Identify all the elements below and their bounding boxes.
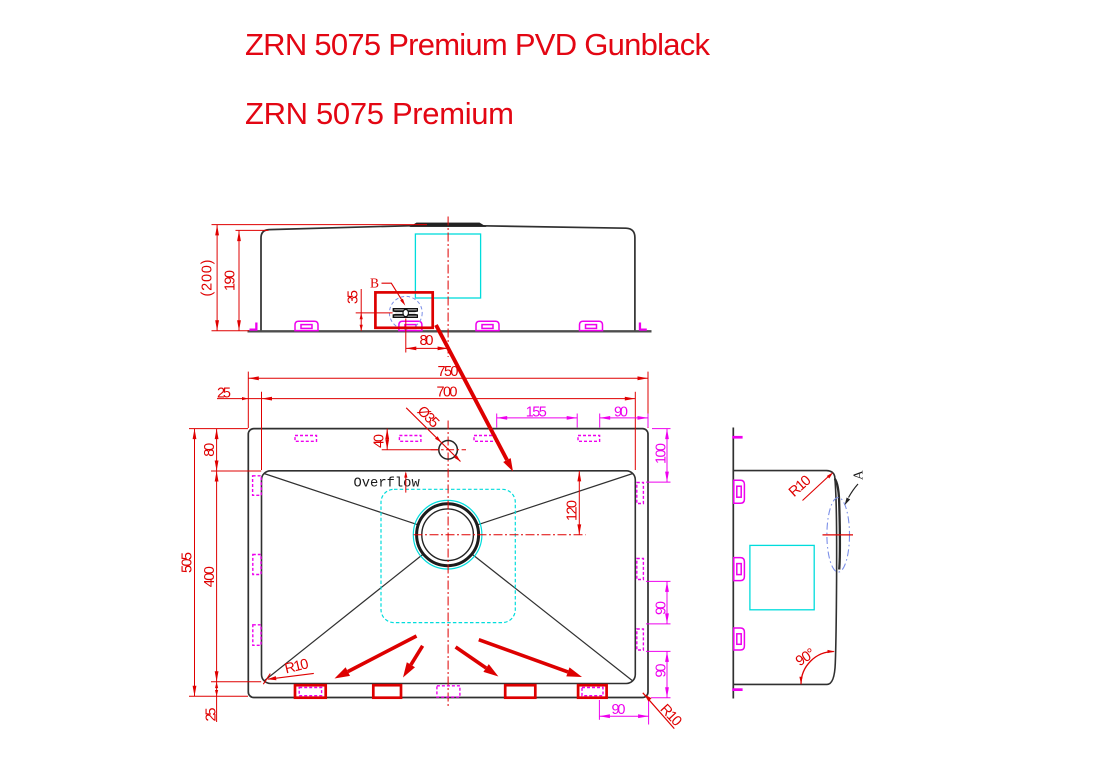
svg-text:25: 25 <box>217 385 231 401</box>
svg-text:700: 700 <box>437 385 458 401</box>
svg-text:B: B <box>370 276 379 291</box>
svg-text:(200): (200) <box>200 260 216 297</box>
svg-text:90: 90 <box>614 404 628 420</box>
svg-text:90: 90 <box>654 664 670 678</box>
svg-text:ZRN 5075 Premium: ZRN 5075 Premium <box>245 96 514 131</box>
svg-text:90°: 90° <box>793 646 818 670</box>
svg-text:35: 35 <box>346 290 362 304</box>
svg-text:A: A <box>851 470 866 480</box>
svg-text:80: 80 <box>202 443 218 457</box>
svg-text:120: 120 <box>565 500 581 521</box>
svg-text:155: 155 <box>526 404 547 420</box>
svg-text:R10: R10 <box>657 701 685 729</box>
svg-text:505: 505 <box>180 552 196 573</box>
svg-text:Overflow: Overflow <box>354 476 421 492</box>
svg-text:90: 90 <box>612 702 626 718</box>
svg-text:ZRN 5075 Premium PVD Gunblack: ZRN 5075 Premium PVD Gunblack <box>245 27 711 62</box>
svg-text:25: 25 <box>204 708 220 722</box>
svg-text:40: 40 <box>372 434 388 448</box>
svg-text:400: 400 <box>202 566 218 587</box>
svg-text:90: 90 <box>654 601 670 615</box>
svg-text:750: 750 <box>438 364 459 380</box>
svg-text:80: 80 <box>420 333 434 349</box>
svg-text:190: 190 <box>223 270 239 291</box>
svg-text:100: 100 <box>654 443 670 464</box>
svg-text:Ø35: Ø35 <box>414 403 442 431</box>
svg-text:R10: R10 <box>786 473 815 501</box>
